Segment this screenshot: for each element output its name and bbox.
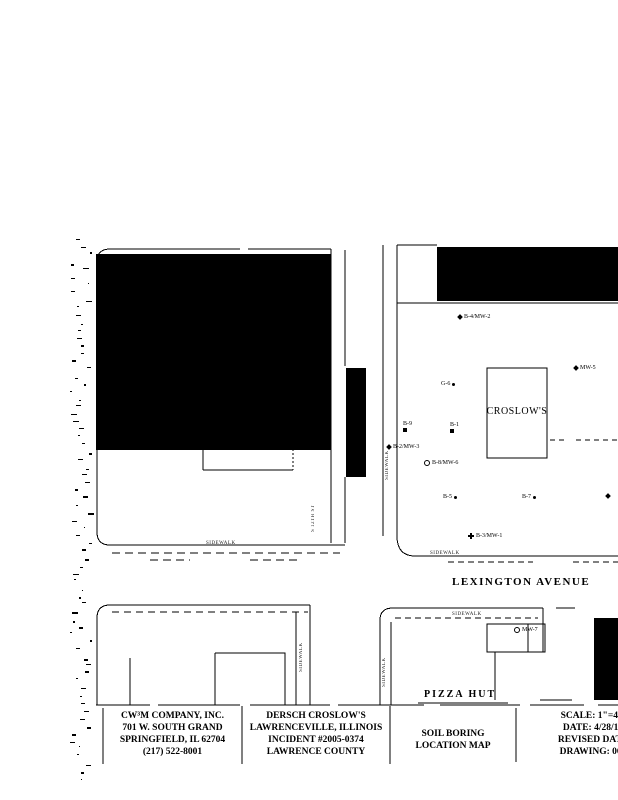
scan-speck bbox=[90, 640, 93, 642]
boring-label: B-4/MW-2 bbox=[464, 314, 490, 320]
scan-speck bbox=[76, 535, 80, 536]
scan-speck bbox=[80, 567, 83, 568]
scan-speck bbox=[85, 482, 90, 483]
scan-speck bbox=[75, 489, 78, 491]
scan-speck bbox=[76, 405, 81, 406]
boring-g6: G-6 bbox=[441, 381, 455, 387]
scan-speck bbox=[74, 579, 75, 580]
sidewalk-label-ne: SIDEWALK bbox=[430, 551, 460, 556]
scan-speck bbox=[81, 353, 84, 354]
scan-speck bbox=[76, 239, 80, 240]
boring-b5: B-5 bbox=[443, 494, 457, 500]
scan-speck bbox=[79, 428, 84, 429]
well-marker-east-edge bbox=[606, 494, 612, 498]
project-city: LAWRENCEVILLE, ILLINOIS bbox=[242, 722, 390, 734]
redaction-box-ne bbox=[437, 247, 618, 301]
scan-speck bbox=[84, 384, 86, 386]
meta-drawing-number: DRAWING: 060 bbox=[528, 746, 618, 758]
site-linework bbox=[0, 0, 618, 800]
scan-speck bbox=[86, 765, 92, 766]
diamond-marker-icon bbox=[457, 314, 463, 320]
circle-marker-icon bbox=[424, 460, 430, 466]
s-12th-st-label: S 12TH ST bbox=[311, 490, 316, 532]
boring-b9: B-9 bbox=[403, 421, 412, 432]
dot-marker-icon bbox=[533, 496, 536, 499]
boring-b3-mw1: B-3/MW-1 bbox=[468, 533, 502, 539]
scan-speck bbox=[77, 754, 79, 755]
meta-revised-date: REVISED DATE bbox=[528, 734, 618, 746]
scan-speck bbox=[72, 612, 77, 614]
scan-speck bbox=[72, 734, 76, 736]
scan-speck bbox=[70, 632, 72, 633]
nw-sidewalk-dashes bbox=[112, 553, 340, 560]
company-city: SPRINGFIELD, IL 62704 bbox=[103, 734, 242, 746]
scan-speck bbox=[78, 435, 80, 436]
boring-b2-mw3: B-2/MW-3 bbox=[387, 444, 419, 450]
boring-label: B-8/MW-6 bbox=[432, 460, 458, 466]
scan-speck bbox=[86, 469, 90, 470]
boring-b4-mw2: B-4/MW-2 bbox=[458, 314, 490, 320]
scan-speck bbox=[81, 324, 83, 325]
project-incident: INCIDENT #2005-0374 bbox=[242, 734, 390, 746]
scan-speck bbox=[81, 779, 82, 780]
scan-speck bbox=[88, 283, 89, 284]
scan-speck bbox=[83, 496, 88, 498]
scan-speck bbox=[76, 505, 78, 506]
scan-speck bbox=[82, 590, 83, 591]
scan-speck bbox=[87, 367, 91, 368]
scan-speck bbox=[82, 549, 86, 551]
scan-speck bbox=[71, 291, 76, 292]
scan-speck bbox=[73, 421, 78, 422]
scan-speck bbox=[84, 711, 89, 712]
circle-marker-icon bbox=[514, 627, 520, 633]
plus-marker-icon bbox=[468, 533, 474, 539]
dot-marker-icon bbox=[454, 496, 457, 499]
well-mw5: MW-5 bbox=[574, 365, 596, 371]
scan-speck bbox=[70, 742, 75, 743]
pizza-hut-label: PIZZA HUT bbox=[424, 689, 496, 700]
lexington-avenue-label: LEXINGTON AVENUE bbox=[452, 576, 590, 588]
scan-speck bbox=[82, 602, 86, 603]
boring-b8-mw6: B-8/MW-6 bbox=[424, 460, 458, 466]
scan-speck bbox=[76, 678, 78, 679]
scan-speck bbox=[71, 264, 74, 266]
boring-label: MW-7 bbox=[522, 627, 538, 633]
sheet-title-line1: SOIL BORING bbox=[390, 728, 516, 740]
well-mw7: MW-7 bbox=[514, 627, 538, 633]
diamond-marker-icon bbox=[386, 444, 392, 450]
scan-speck bbox=[77, 338, 82, 339]
scan-speck bbox=[87, 727, 91, 729]
croslows-building-label: CROSLOW'S bbox=[486, 406, 548, 417]
boring-b1: B-1 bbox=[450, 422, 459, 433]
scan-speck bbox=[81, 772, 85, 774]
sidewalk-label-nw: SIDEWALK bbox=[206, 541, 236, 546]
scan-speck bbox=[89, 543, 92, 544]
scan-speck bbox=[82, 443, 86, 444]
boring-label: MW-5 bbox=[580, 365, 596, 371]
project-county: LAWRENCE COUNTY bbox=[242, 746, 390, 758]
scan-speck bbox=[81, 247, 86, 248]
boring-label: B-7 bbox=[522, 494, 531, 500]
scan-speck bbox=[72, 521, 77, 522]
scan-speck bbox=[86, 301, 91, 302]
scan-speck bbox=[81, 688, 86, 689]
scan-speck bbox=[76, 648, 79, 649]
redaction-box-nw bbox=[96, 254, 331, 450]
scan-speck bbox=[73, 621, 75, 623]
scan-speck bbox=[79, 627, 83, 629]
sidewalk-label-se-top: SIDEWALK bbox=[452, 612, 482, 617]
project-name: DERSCH CROSLOW'S bbox=[242, 710, 390, 722]
sidewalk-label-se-vertical: SIDEWALK bbox=[382, 645, 387, 687]
scan-speck bbox=[79, 597, 81, 599]
company-phone: (217) 522-8001 bbox=[103, 746, 242, 758]
scan-speck bbox=[71, 414, 76, 415]
scan-speck bbox=[78, 459, 83, 460]
sheet-title-line2: LOCATION MAP bbox=[390, 740, 516, 752]
scan-speck bbox=[85, 671, 90, 673]
scan-speck bbox=[79, 400, 82, 401]
scan-speck bbox=[88, 513, 94, 515]
pizza-hut-underline bbox=[418, 700, 572, 703]
boring-label: G-6 bbox=[441, 381, 450, 387]
dot-marker-icon bbox=[452, 383, 455, 386]
scan-speck bbox=[79, 746, 81, 747]
boring-label: B-3/MW-1 bbox=[476, 533, 502, 539]
scan-speck bbox=[72, 360, 77, 362]
redaction-bar-street bbox=[346, 368, 366, 477]
diamond-marker-icon bbox=[605, 493, 611, 499]
boring-label: B-1 bbox=[450, 422, 459, 428]
sidewalk-label-sw-vertical: SIDEWALK bbox=[299, 634, 304, 672]
boring-label: B-2/MW-3 bbox=[393, 444, 419, 450]
scan-speck bbox=[73, 574, 78, 575]
scan-speck bbox=[80, 696, 82, 697]
title-block-meta: SCALE: 1"=40' DATE: 4/28/14 REVISED DATE… bbox=[528, 710, 618, 758]
nw-small-building-outline bbox=[203, 449, 293, 470]
scan-speck bbox=[86, 664, 91, 665]
boring-label: B-9 bbox=[403, 421, 412, 427]
scan-speck bbox=[76, 315, 81, 316]
title-block-company: CW³M COMPANY, INC. 701 W. SOUTH GRAND SP… bbox=[103, 710, 242, 758]
scan-speck bbox=[82, 474, 87, 475]
scan-speck bbox=[84, 659, 88, 661]
square-marker-icon bbox=[403, 428, 407, 432]
scan-speck bbox=[80, 719, 85, 720]
scan-speck bbox=[84, 527, 86, 528]
title-block-project: DERSCH CROSLOW'S LAWRENCEVILLE, ILLINOIS… bbox=[242, 710, 390, 758]
scan-speck bbox=[85, 559, 89, 561]
redaction-box-se bbox=[594, 618, 618, 700]
scan-speck bbox=[70, 391, 72, 392]
scan-speck bbox=[77, 306, 79, 307]
boring-label: B-5 bbox=[443, 494, 452, 500]
meta-date: DATE: 4/28/14 bbox=[528, 722, 618, 734]
scan-speck bbox=[81, 345, 83, 347]
company-street: 701 W. SOUTH GRAND bbox=[103, 722, 242, 734]
square-marker-icon bbox=[450, 429, 454, 433]
boring-b7: B-7 bbox=[522, 494, 536, 500]
scan-speck bbox=[83, 268, 89, 269]
sw-building-outline bbox=[215, 653, 285, 705]
scan-speck bbox=[81, 703, 86, 704]
sw-block-outline bbox=[97, 605, 310, 705]
title-block-sheet-title: SOIL BORING LOCATION MAP bbox=[390, 728, 516, 752]
meta-scale: SCALE: 1"=40' bbox=[528, 710, 618, 722]
scan-speck bbox=[71, 278, 75, 279]
scan-speck bbox=[75, 378, 78, 379]
scan-speck bbox=[78, 330, 80, 331]
scan-speck bbox=[90, 252, 92, 254]
scanned-drawing-sheet: CROSLOW'S LEXINGTON AVENUE PIZZA HUT S 1… bbox=[0, 0, 618, 800]
company-name: CW³M COMPANY, INC. bbox=[103, 710, 242, 722]
scan-speck bbox=[89, 453, 91, 455]
diamond-marker-icon bbox=[573, 365, 579, 371]
